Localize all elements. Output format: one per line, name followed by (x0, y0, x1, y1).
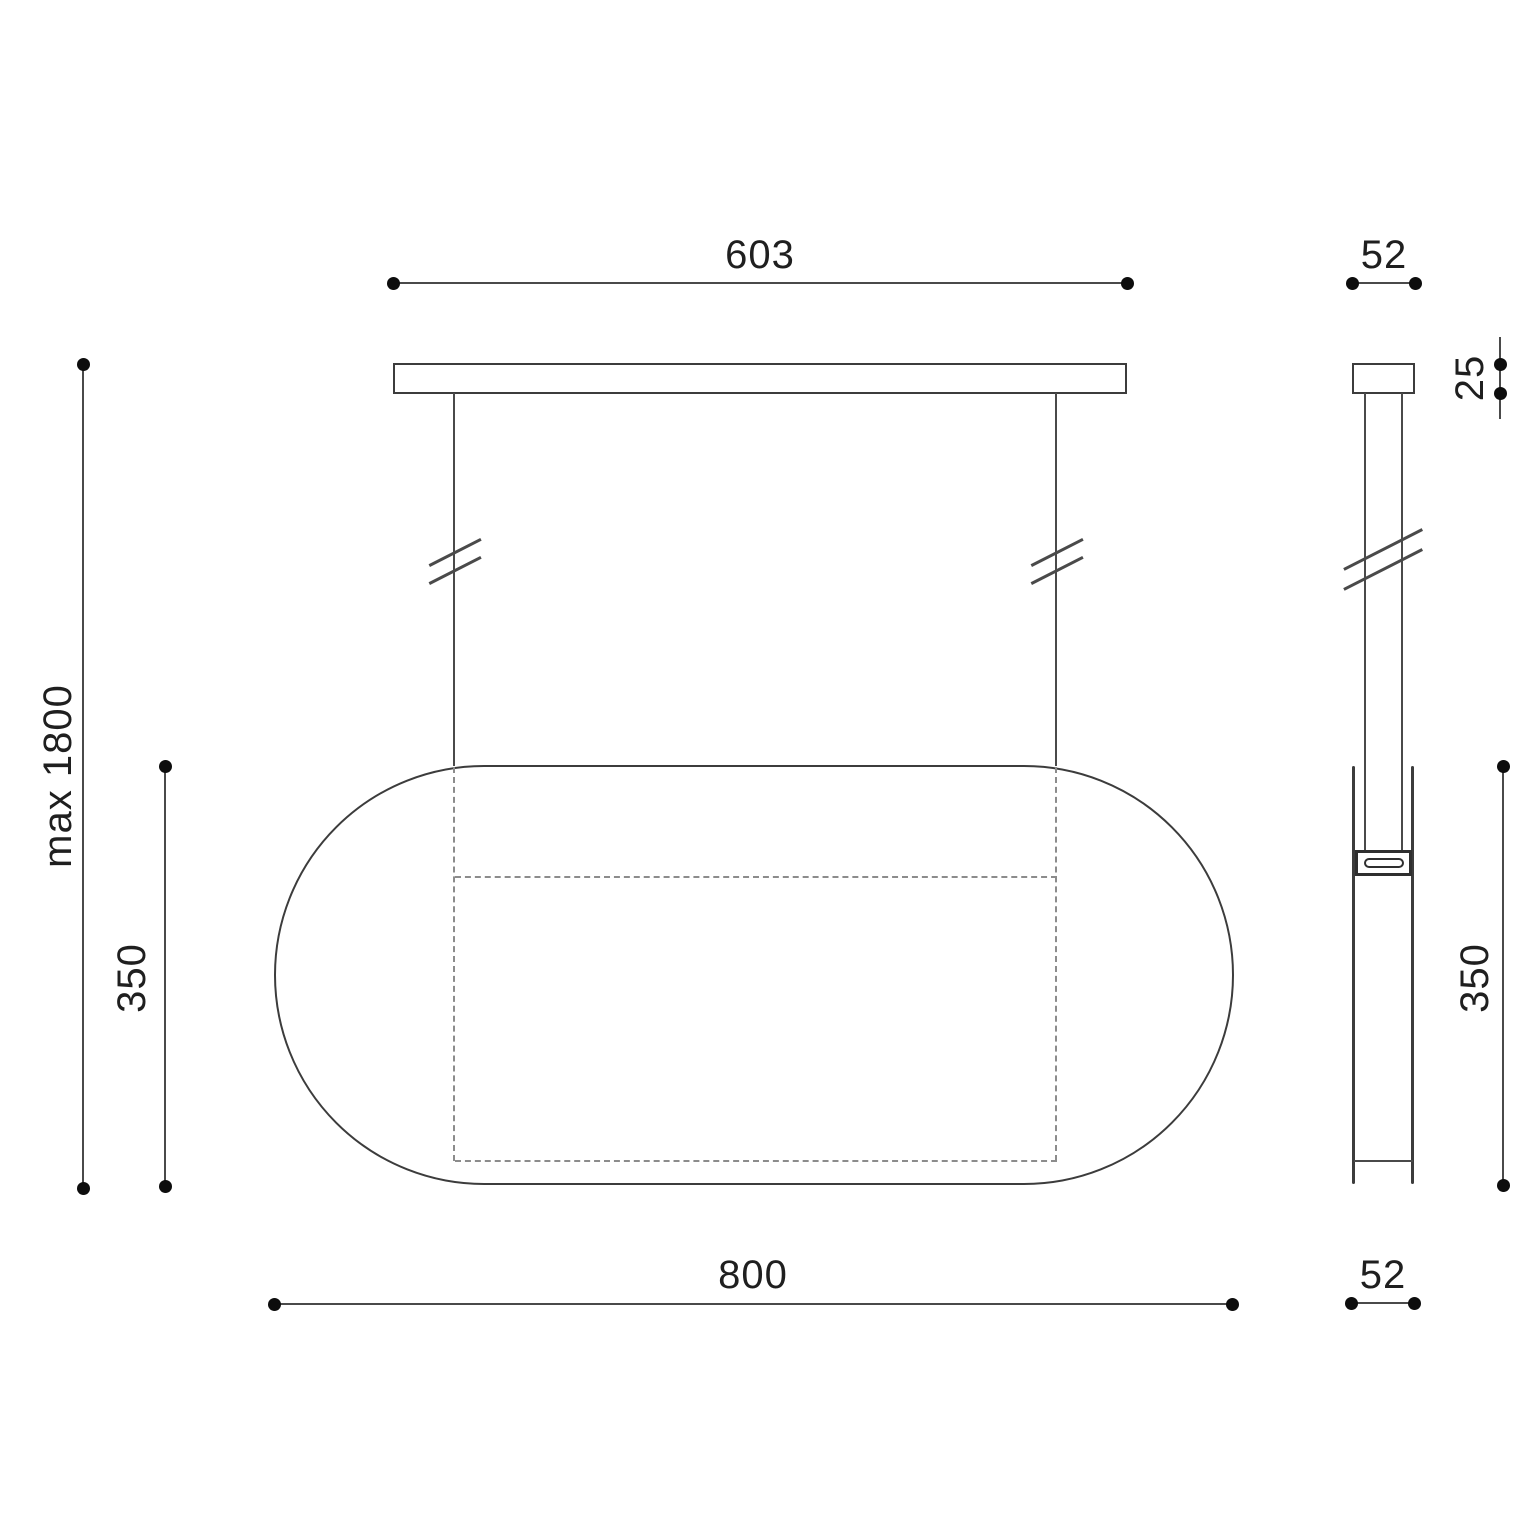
dim-extension-line (1499, 337, 1501, 419)
dim-endpoint-dot (159, 760, 172, 773)
dim-endpoint-dot (1345, 1297, 1358, 1310)
dim-endpoint-dot (159, 1180, 172, 1193)
dim-line (1502, 766, 1504, 1185)
dim-line (274, 1303, 1232, 1305)
stem-side-right-edge (1401, 393, 1403, 851)
canopy-side (1352, 363, 1415, 394)
dim-value: 350 (109, 828, 155, 1128)
dim-endpoint-dot (268, 1298, 281, 1311)
dim-endpoint-dot (1346, 277, 1359, 290)
stem-side-left-edge (1364, 393, 1366, 851)
dim-value: max 1800 (35, 626, 81, 926)
dim-endpoint-dot (1121, 277, 1134, 290)
dim-line (82, 364, 84, 1188)
dim-value: 603 (660, 232, 860, 278)
inner-panel-dashed-left (453, 767, 455, 1161)
suspension-cable-right (1055, 393, 1057, 766)
shade-side-inner-bottom (1354, 1160, 1413, 1162)
dim-line (1351, 1302, 1414, 1304)
dim-endpoint-dot (1226, 1298, 1239, 1311)
dim-line (164, 766, 166, 1186)
shade-side-left-edge (1352, 766, 1355, 1184)
dim-endpoint-dot (1497, 1179, 1510, 1192)
dim-endpoint-dot (1497, 760, 1510, 773)
dim-endpoint-dot (1494, 387, 1507, 400)
break-slash (1343, 528, 1423, 570)
dim-value: 25 (1447, 228, 1493, 528)
dim-endpoint-dot (77, 358, 90, 371)
dim-value: 800 (653, 1252, 853, 1298)
dim-endpoint-dot (1408, 1297, 1421, 1310)
break-slash (1343, 548, 1423, 590)
dim-line (1352, 282, 1415, 284)
dim-endpoint-dot (1409, 277, 1422, 290)
suspension-cable-left (453, 393, 455, 766)
dim-value: 52 (1283, 1252, 1483, 1298)
inner-panel-dashed-right (1055, 767, 1057, 1161)
shade-side-right-edge (1411, 766, 1414, 1184)
inner-panel-dashed-top (455, 876, 1057, 878)
dim-endpoint-dot (77, 1182, 90, 1195)
technical-drawing-pendant-lamp: 603 800 (0, 0, 1540, 1540)
inner-panel-dashed-bottom (455, 1160, 1057, 1162)
dim-endpoint-dot (387, 277, 400, 290)
dim-line (393, 282, 1127, 284)
canopy-front (393, 363, 1127, 394)
dim-endpoint-dot (1494, 358, 1507, 371)
socket-inner-detail (1364, 858, 1404, 868)
shade-front-outline (274, 765, 1234, 1185)
dim-value: 350 (1452, 828, 1498, 1128)
